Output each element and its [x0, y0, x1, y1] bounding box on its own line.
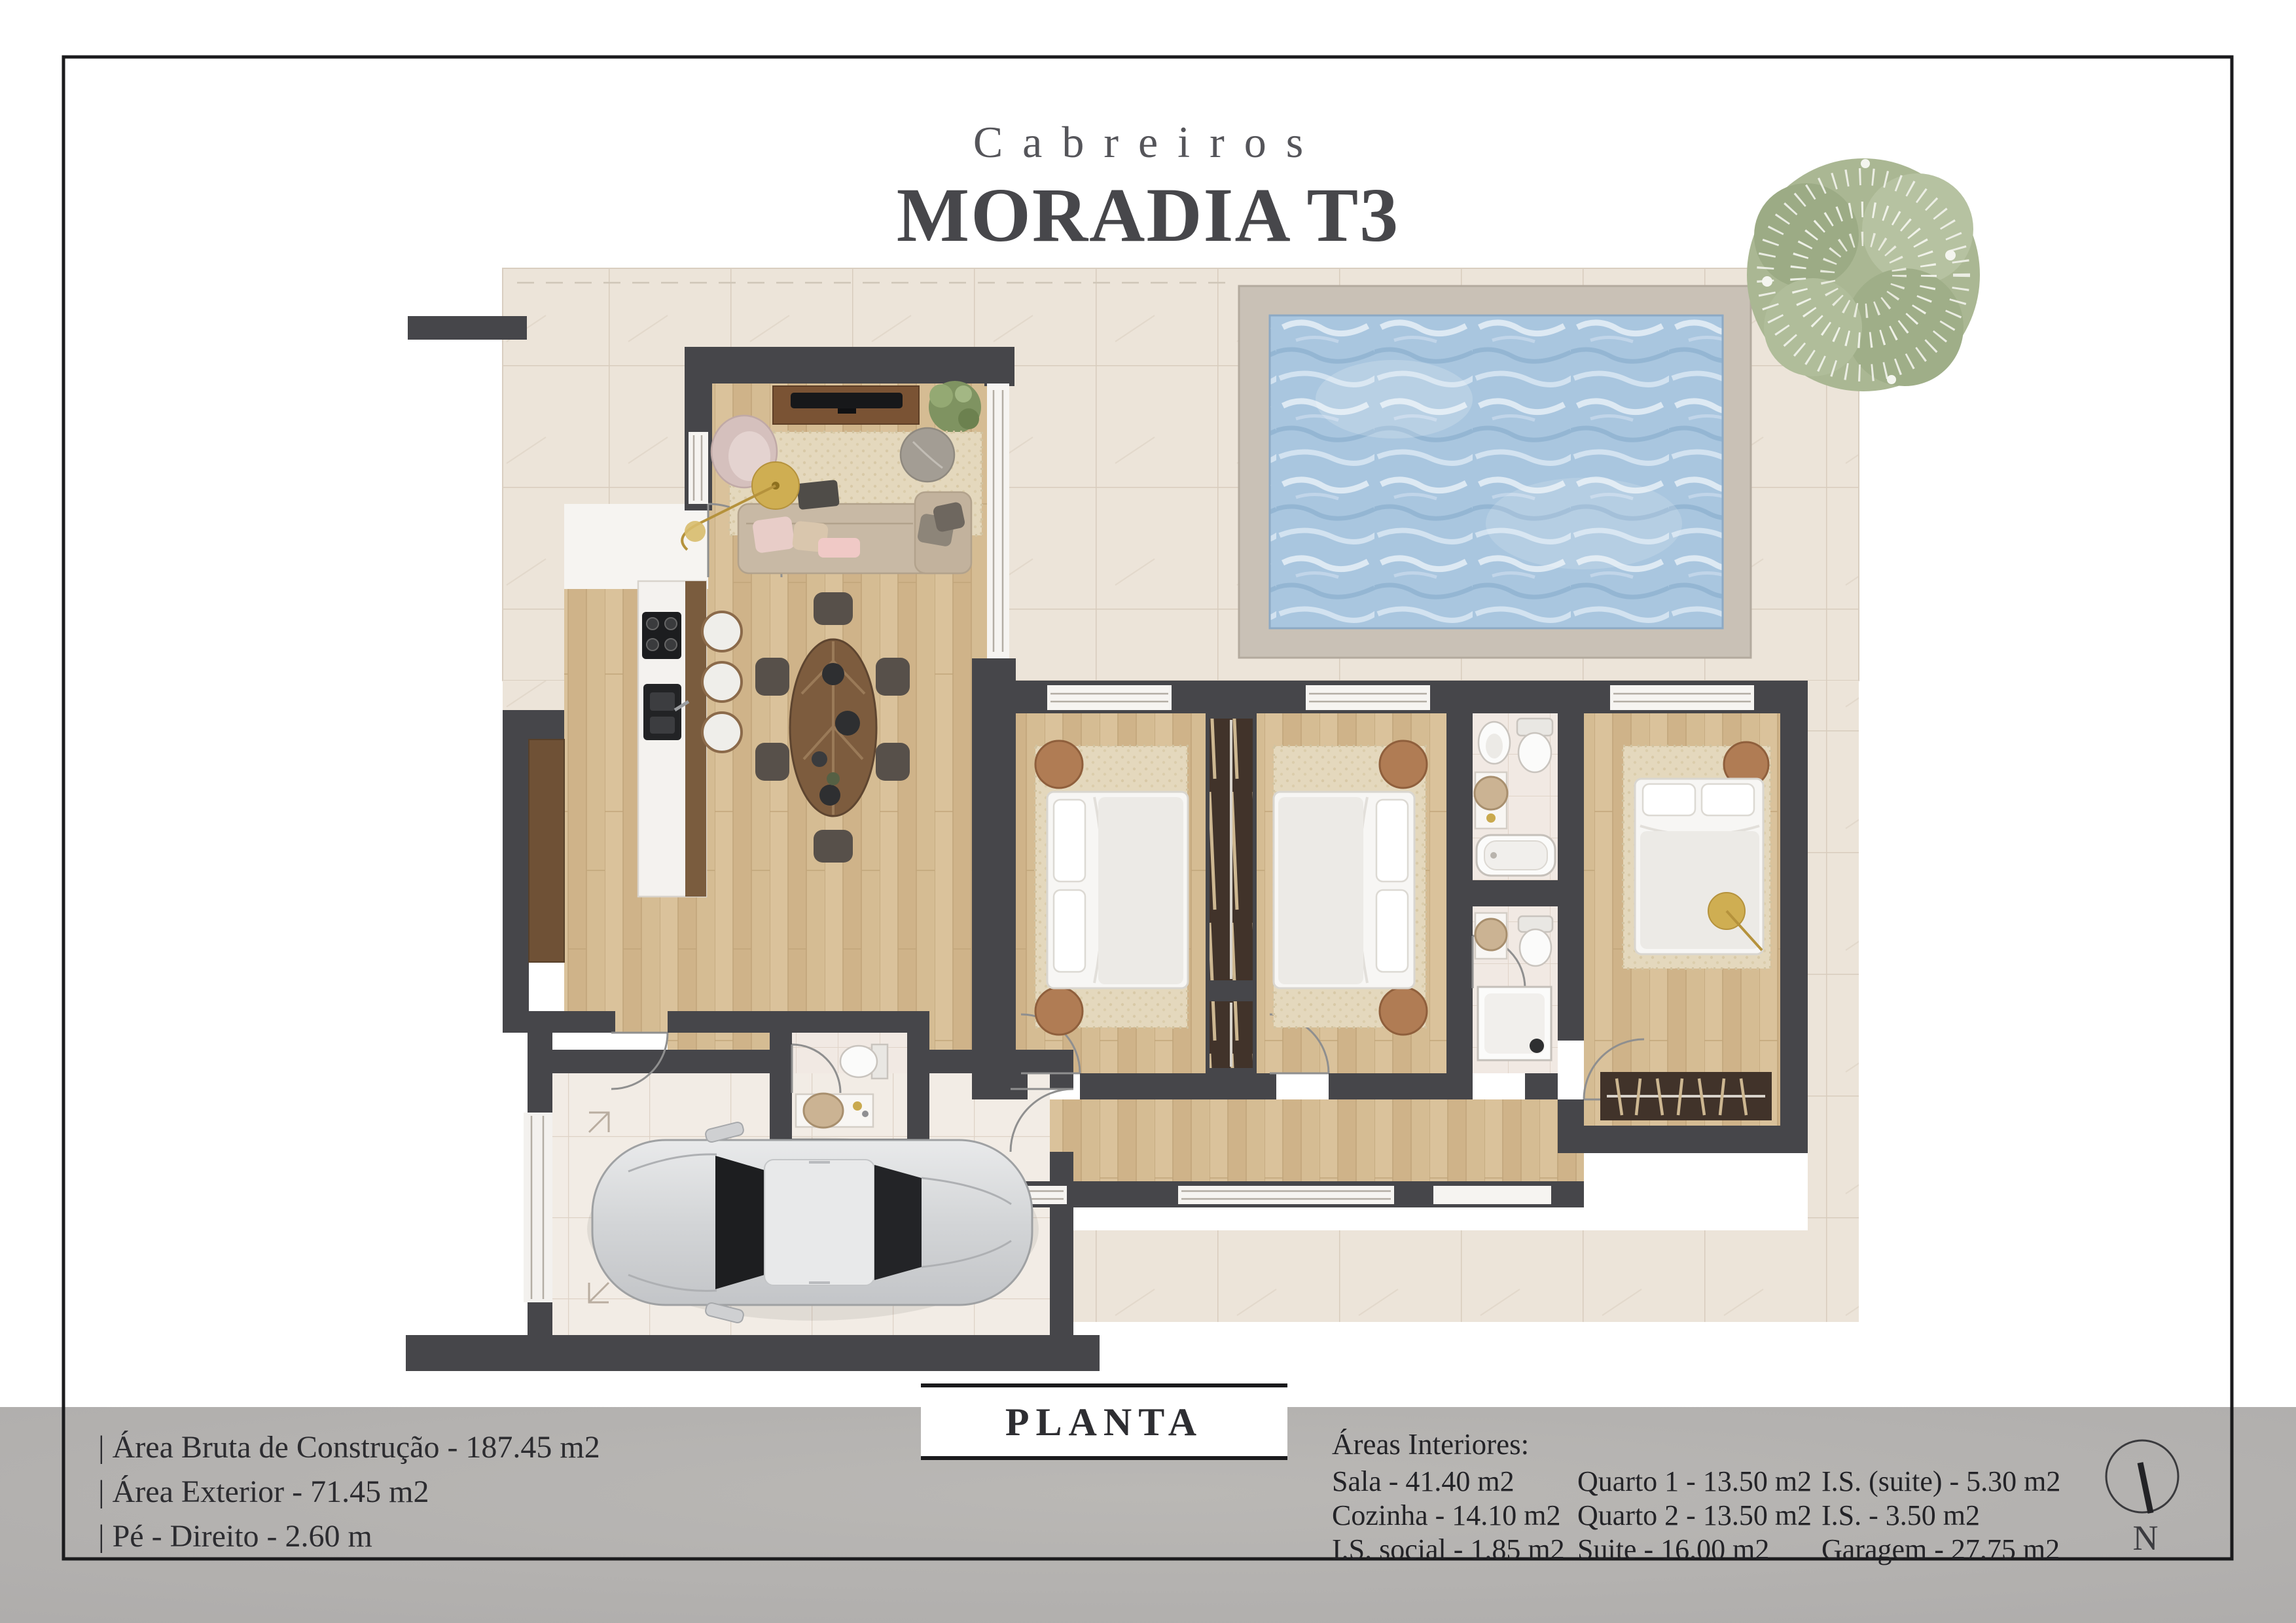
nightstand: [1035, 988, 1083, 1035]
bar-stools: [702, 612, 742, 752]
area-quarto1: Quarto 1 - 13.50 m2: [1577, 1465, 1812, 1497]
sink-icon: [1475, 772, 1507, 829]
coffee-table: [901, 428, 954, 482]
brand-title: Cabreiros: [973, 117, 1323, 167]
area-garagem: Garagem - 27.75 m2: [1821, 1533, 2060, 1565]
pool-icon: [1239, 286, 1751, 658]
plan-label-box: PLANTA: [921, 1385, 1287, 1458]
area-is-suite: I.S. (suite) - 5.30 m2: [1821, 1465, 2060, 1497]
sink-icon: [1475, 913, 1507, 959]
spec-area-bruta: | Área Bruta de Construção - 187.45 m2: [98, 1430, 600, 1465]
area-is-social: I.S. social - 1.85 m2: [1332, 1533, 1565, 1565]
spec-area-exterior: | Área Exterior - 71.45 m2: [98, 1474, 429, 1509]
area-sala: Sala - 41.40 m2: [1332, 1465, 1515, 1497]
bathtub-icon: [1477, 835, 1555, 876]
area-cozinha: Cozinha - 14.10 m2: [1332, 1499, 1561, 1531]
toilet-icon: [1518, 916, 1552, 966]
nightstand: [1380, 741, 1427, 788]
floor-plan-page: Cabreiros MORADIA T3: [0, 0, 2296, 1623]
sink-icon: [796, 1094, 873, 1128]
toilet-icon: [840, 1044, 888, 1079]
area-quarto2: Quarto 2 - 13.50 m2: [1577, 1499, 1812, 1531]
bidet-icon: [1479, 722, 1510, 764]
plan-label: PLANTA: [1005, 1400, 1203, 1444]
bed-icon: [1274, 792, 1414, 988]
area-is: I.S. - 3.50 m2: [1821, 1499, 1980, 1531]
kitchen-counter: [529, 740, 564, 962]
spec-pe-direito: | Pé - Direito - 2.60 m: [98, 1519, 372, 1554]
plan-canvas: Cabreiros MORADIA T3: [0, 0, 2296, 1623]
bedroom-2: [1274, 741, 1427, 1035]
bed-icon: [1047, 792, 1188, 988]
car-icon: [587, 1121, 1039, 1323]
garage: [587, 1113, 1039, 1324]
toilet-icon: [1517, 719, 1552, 772]
nightstand: [1380, 988, 1427, 1035]
dining-table-icon: [790, 639, 876, 816]
nightstand: [1035, 741, 1083, 788]
tv-icon: [773, 386, 919, 424]
floor-cushion: [797, 480, 840, 510]
wardrobe-icon: [1600, 1072, 1772, 1120]
bedroom-1: [1035, 741, 1188, 1035]
area-suite: Suite - 16.00 m2: [1577, 1533, 1769, 1565]
wardrobe-icon: [1206, 713, 1257, 1073]
areas-heading: Áreas Interiores:: [1332, 1428, 1529, 1461]
north-label: N: [2133, 1518, 2159, 1558]
shower-icon: [1478, 987, 1551, 1060]
plant-icon: [929, 381, 981, 433]
tree-icon: [1747, 158, 1980, 391]
kitchen-island-icon: [638, 581, 706, 897]
page-title: MORADIA T3: [897, 172, 1400, 258]
cooktop-icon: [642, 612, 681, 659]
bed-icon: [1635, 779, 1763, 954]
